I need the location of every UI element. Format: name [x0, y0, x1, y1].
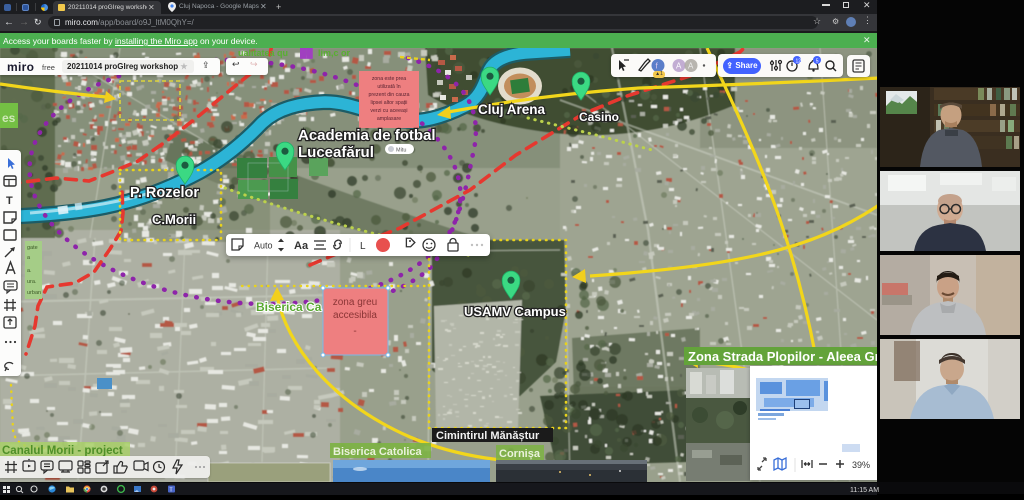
- svg-text:Aa: Aa: [294, 240, 309, 252]
- svg-text:ualitatea qu: ualitatea qu: [238, 48, 288, 58]
- svg-text:USAMV Campus: USAMV Campus: [464, 304, 566, 319]
- svg-text:lim,c or: lim,c or: [318, 48, 351, 58]
- svg-text:verzi cu aceeași: verzi cu aceeași: [370, 108, 407, 114]
- svg-text:Auto: Auto: [254, 241, 273, 251]
- svg-text:Cimintirul Mănăștur: Cimintirul Mănăștur: [436, 430, 540, 442]
- svg-text:A: A: [688, 62, 694, 71]
- svg-text:zona este prea: zona este prea: [372, 76, 406, 82]
- svg-text:Biserica Catolica: Biserica Catolica: [333, 446, 423, 458]
- svg-text:Academia de fotbal: Academia de fotbal: [298, 127, 436, 144]
- svg-text:es: es: [2, 111, 16, 125]
- svg-text:5: 5: [816, 59, 819, 65]
- svg-text:-: -: [353, 326, 356, 337]
- svg-text:██: ██: [300, 48, 313, 59]
- svg-text:Mitu: Mitu: [396, 148, 406, 154]
- svg-text:L: L: [360, 241, 366, 252]
- svg-text:ura.: ura.: [27, 279, 37, 285]
- svg-text:Casino: Casino: [579, 110, 619, 124]
- svg-text:gate: gate: [27, 245, 38, 251]
- svg-text:prezent din cauza: prezent din cauza: [369, 92, 410, 98]
- svg-text:P. Rozelor: P. Rozelor: [130, 185, 199, 201]
- svg-text:39%: 39%: [852, 460, 870, 470]
- svg-text:Cluj Arena: Cluj Arena: [478, 102, 546, 117]
- svg-text:amplasare: amplasare: [377, 116, 401, 122]
- svg-text:accesibila: accesibila: [333, 310, 377, 321]
- svg-text:utilizată în: utilizată în: [377, 84, 400, 90]
- svg-text:C.Morii: C.Morii: [152, 212, 196, 227]
- svg-text:Cornișa: Cornișa: [499, 448, 541, 460]
- svg-text:lipsei altor spații: lipsei altor spații: [371, 100, 408, 106]
- svg-text:12: 12: [796, 59, 802, 65]
- svg-text:11:15 AM: 11:15 AM: [850, 487, 879, 494]
- svg-text:urban: urban: [27, 290, 41, 296]
- svg-text:zona greu: zona greu: [333, 297, 377, 308]
- svg-text:A: A: [676, 62, 682, 71]
- svg-text:T: T: [170, 488, 173, 494]
- svg-text:Zona Strada Plopilor - Aleea G: Zona Strada Plopilor - Aleea Grădi: [688, 349, 877, 364]
- svg-text:a.: a.: [27, 268, 32, 274]
- svg-text:Luceafărul: Luceafărul: [298, 144, 374, 161]
- svg-text:Biserica Ca: Biserica Ca: [256, 300, 322, 314]
- svg-text:T: T: [6, 195, 13, 207]
